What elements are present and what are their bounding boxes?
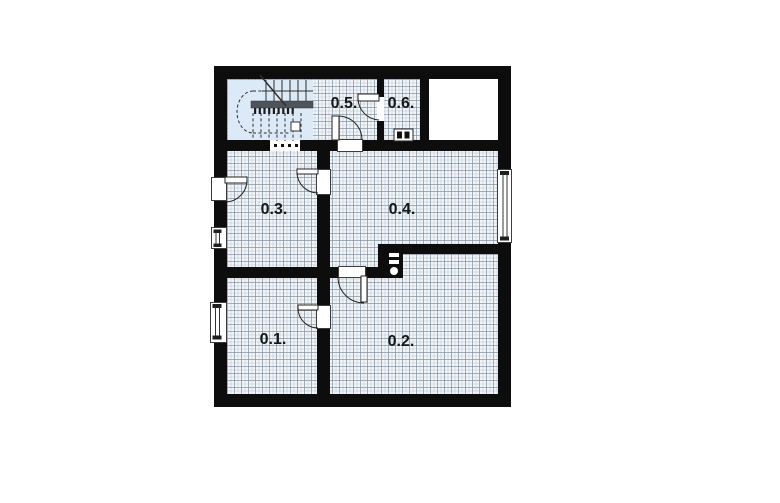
- chimney-flue-symbols: [389, 253, 399, 275]
- room-label-0-3: 0.3.: [261, 202, 288, 218]
- plan-vector-details: [0, 0, 780, 503]
- door-symbols: [225, 94, 379, 328]
- room-label-0-1: 0.1.: [260, 332, 287, 348]
- floor-plan-canvas: 0.1. 0.2. 0.3. 0.4. 0.5. 0.6.: [0, 0, 780, 503]
- vent-box-06: [394, 129, 413, 141]
- stairs-symbol: [237, 75, 313, 141]
- room-label-0-6: 0.6.: [388, 96, 415, 112]
- window-glazing: [213, 171, 510, 340]
- room-label-0-5: 0.5.: [331, 96, 358, 112]
- room-label-0-4: 0.4.: [389, 202, 416, 218]
- room-label-0-2: 0.2.: [388, 334, 415, 350]
